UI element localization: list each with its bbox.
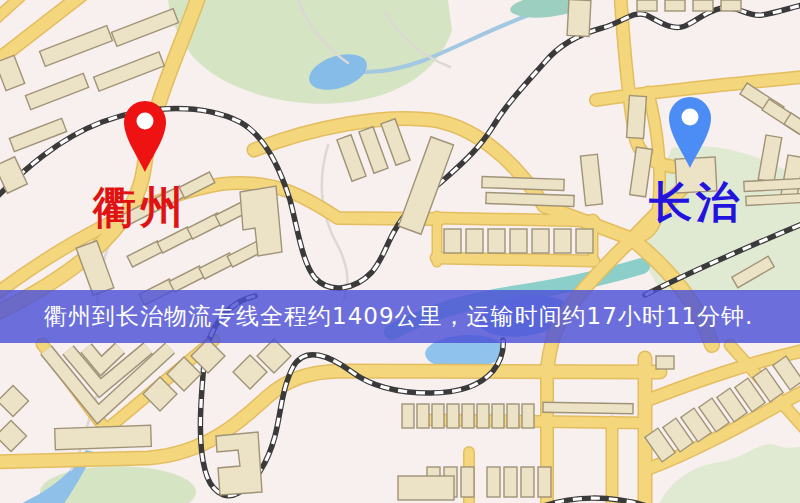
building (432, 404, 444, 428)
building (482, 177, 564, 191)
building (637, 0, 657, 11)
route-info-text: 衢州到长治物流专线全程约1409公里，运输时间约17小时11分钟. (44, 301, 753, 332)
building (488, 229, 505, 253)
building (507, 404, 519, 428)
building (746, 194, 800, 206)
building (487, 467, 500, 497)
building (402, 404, 414, 428)
building (576, 229, 593, 253)
building (744, 178, 800, 191)
road (436, 258, 594, 261)
building (444, 229, 461, 253)
building (554, 229, 571, 253)
building (532, 229, 549, 253)
building (462, 404, 474, 428)
map-canvas[interactable] (0, 0, 800, 503)
building (665, 0, 685, 11)
building (486, 192, 574, 206)
building (504, 467, 517, 497)
building (417, 404, 429, 428)
building (477, 404, 489, 428)
map-viewport: 衢州 长治 衢州到长治物流专线全程约1409公里，运输时间约17小时11分钟. (0, 0, 800, 503)
building (55, 425, 152, 449)
building (627, 95, 647, 138)
building (398, 476, 454, 500)
route-info-banner: 衢州到长治物流专线全程约1409公里，运输时间约17小时11分钟. (0, 290, 800, 343)
building (543, 402, 633, 414)
origin-city-label: 衢州 (93, 186, 187, 229)
destination-city-label: 长治 (649, 181, 743, 224)
building (522, 404, 534, 428)
building (721, 0, 741, 11)
building (567, 0, 591, 37)
building (521, 467, 534, 497)
building (656, 356, 674, 369)
building (466, 229, 483, 253)
building (538, 467, 551, 497)
building (510, 229, 527, 253)
building (447, 404, 459, 428)
building (492, 404, 504, 428)
building (693, 0, 713, 11)
building (461, 467, 474, 497)
